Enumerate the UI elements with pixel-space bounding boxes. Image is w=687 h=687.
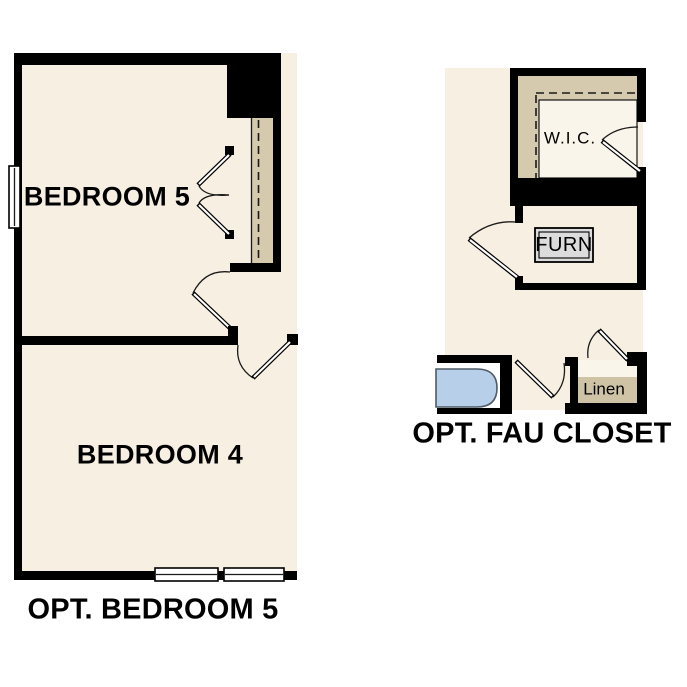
thick-wall-band	[510, 178, 646, 206]
room-label-wic: W.I.C.	[544, 130, 596, 147]
room-label-bedroom5: BEDROOM 5	[24, 184, 190, 211]
closet-shelf	[252, 118, 273, 263]
floorplan-canvas: BEDROOM 5 BEDROOM 4 OPT. BEDROOM 5 W.I.C…	[0, 0, 687, 687]
plan-opt-bedroom5	[9, 53, 298, 581]
closet-bottom-wall	[230, 263, 281, 272]
furn-bottom-wall	[515, 283, 646, 290]
dividing-wall-jamb	[228, 326, 238, 337]
bathtub	[436, 369, 497, 407]
room-label-linen: Linen	[583, 381, 625, 398]
floorplan-drawing	[0, 0, 687, 687]
wic-top-wall	[510, 68, 646, 76]
linen-bottom-wall	[565, 403, 647, 414]
left-wall	[14, 53, 22, 580]
linen-left-wall	[570, 357, 578, 407]
wic-left-wall	[510, 68, 518, 178]
furn-left-jamb-top	[515, 206, 523, 223]
wic-right-wall-upper	[637, 68, 646, 122]
plan-title-opt-fau-closet: OPT. FAU CLOSET	[412, 420, 671, 449]
room-label-bedroom4: BEDROOM 4	[77, 442, 243, 469]
dividing-wall	[14, 336, 238, 345]
room-label-furn: FURN	[535, 235, 593, 255]
closet-solid-block	[227, 58, 281, 118]
plan-title-opt-bedroom5: OPT. BEDROOM 5	[28, 596, 279, 625]
furn-right-wall	[637, 206, 646, 290]
tub-bottom-wall	[437, 408, 512, 414]
tub-right-wall	[500, 355, 512, 414]
